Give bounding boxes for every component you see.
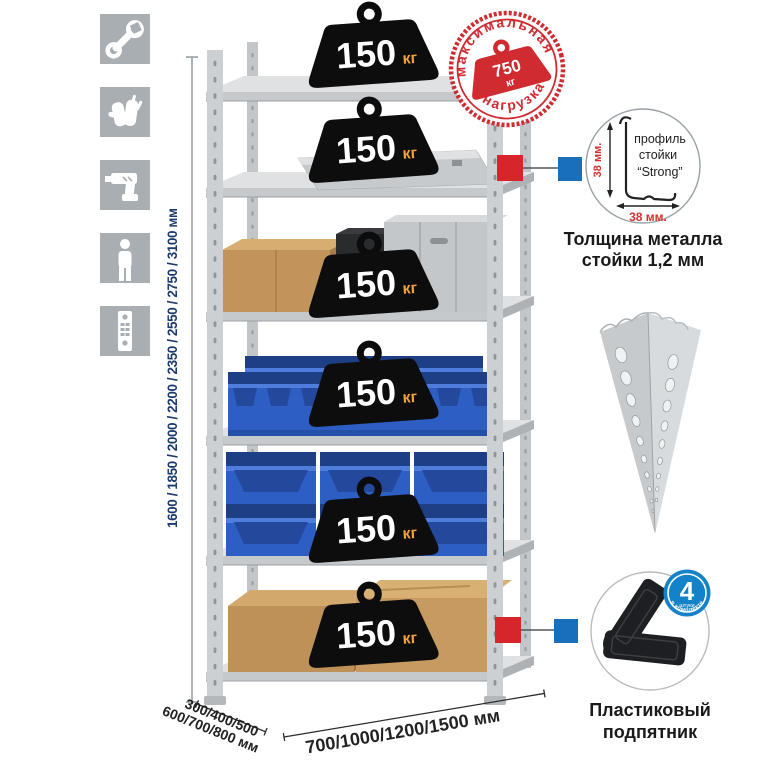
wrench-icon xyxy=(100,14,150,64)
connector-red-marker xyxy=(497,155,523,181)
person-icon xyxy=(100,233,150,283)
max-load-stamp: максимальная нагрузка 750 кг xyxy=(438,0,575,137)
profile-caption-2: стойки 1,2 мм xyxy=(582,250,704,270)
load-value: 150 xyxy=(335,126,398,171)
profile-dim-horizontal: 38 мм. xyxy=(629,210,667,224)
height-dimension: 1600 / 1850 / 2000 / 2200 / 2350 / 2550 … xyxy=(165,57,198,702)
load-badge-2: 150 кг xyxy=(304,96,439,184)
load-unit: кг xyxy=(402,280,418,298)
badge-number: 4 xyxy=(680,576,695,606)
width-dimension-label: 700/1000/1200/1500 мм xyxy=(304,705,501,757)
load-unit: кг xyxy=(402,525,418,543)
infographic-canvas: 1600 / 1850 / 2000 / 2200 / 2350 / 2550 … xyxy=(0,0,765,765)
width-dimension: 700/1000/1200/1500 мм xyxy=(283,689,548,760)
profile-label-2: стойки xyxy=(639,148,677,162)
gloves-icon xyxy=(100,87,150,137)
quantity-badge: 4 штуки в комплекте xyxy=(664,570,711,617)
corner-post-graphic xyxy=(600,313,701,534)
profile-label-3: “Strong” xyxy=(637,165,682,179)
profile-label-1: профиль xyxy=(634,132,686,146)
load-value: 150 xyxy=(335,261,398,306)
drill-icon xyxy=(100,160,150,210)
load-value: 150 xyxy=(335,31,398,76)
foot-caption-2: подпятник xyxy=(603,722,698,742)
load-value: 150 xyxy=(335,611,398,656)
load-value: 150 xyxy=(335,370,398,415)
rack-front-left-post xyxy=(207,50,223,702)
foot-caption-1: Пластиковый xyxy=(589,700,711,720)
connector-blue-marker xyxy=(554,619,578,643)
load-unit: кг xyxy=(402,630,418,648)
load-unit: кг xyxy=(402,50,418,68)
load-value: 150 xyxy=(335,506,398,551)
profile-dim-vertical: 38 мм. xyxy=(592,143,604,178)
profile-caption-1: Толщина металла xyxy=(564,229,724,249)
profile-callout: 38 мм. 38 мм. профиль стойки “Strong” То… xyxy=(564,109,724,270)
load-unit: кг xyxy=(402,145,418,163)
connector-blue-marker xyxy=(558,157,582,181)
foot-callout: 4 штуки в комплекте Пластиковый подпятни… xyxy=(589,570,711,743)
load-unit: кг xyxy=(402,389,418,407)
load-badge-4: 150 кг xyxy=(304,340,439,428)
connector-red-marker xyxy=(495,617,521,643)
rack-front-right-post xyxy=(487,50,503,702)
foot-connector xyxy=(495,617,578,643)
profile-connector xyxy=(497,155,582,181)
height-dimension-label: 1600 / 1850 / 2000 / 2200 / 2350 / 2550 … xyxy=(165,208,180,528)
load-badge-1: 150 кг xyxy=(304,1,439,89)
product-infographic: 1600 / 1850 / 2000 / 2200 / 2350 / 2550 … xyxy=(0,0,765,765)
assembly-icons-panel xyxy=(100,14,150,356)
perforated-post-icon xyxy=(100,306,150,356)
